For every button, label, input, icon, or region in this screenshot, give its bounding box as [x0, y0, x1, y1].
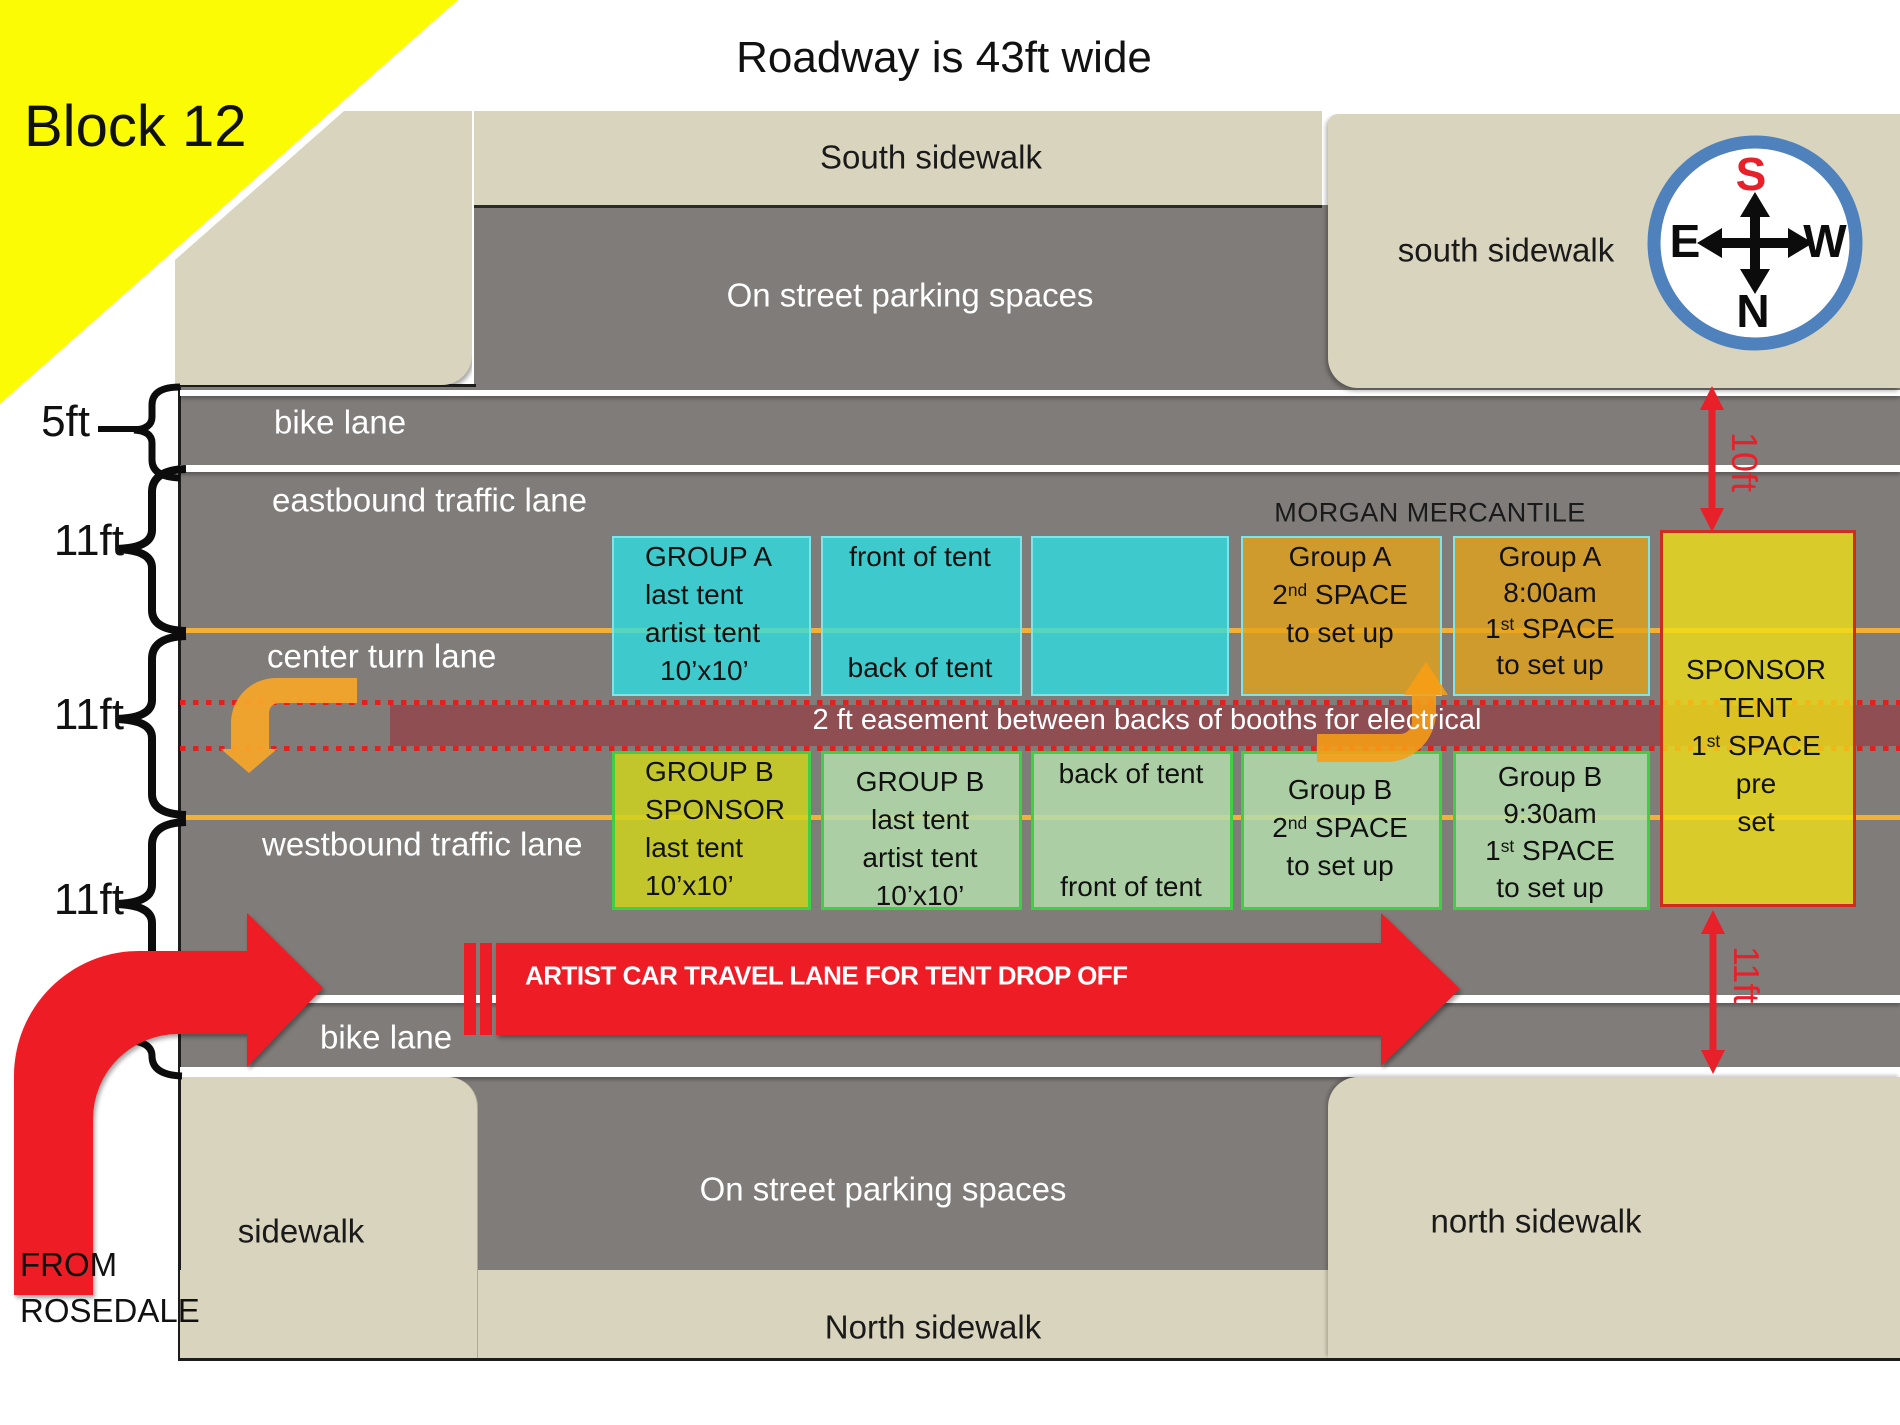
svg-text:S: S	[1736, 148, 1767, 200]
svg-text:10ft: 10ft	[1724, 432, 1765, 492]
svg-text:E: E	[1670, 215, 1701, 267]
svg-text:N: N	[1736, 285, 1769, 337]
svg-text:11ft: 11ft	[1726, 946, 1767, 1003]
svg-text:W: W	[1803, 215, 1847, 267]
